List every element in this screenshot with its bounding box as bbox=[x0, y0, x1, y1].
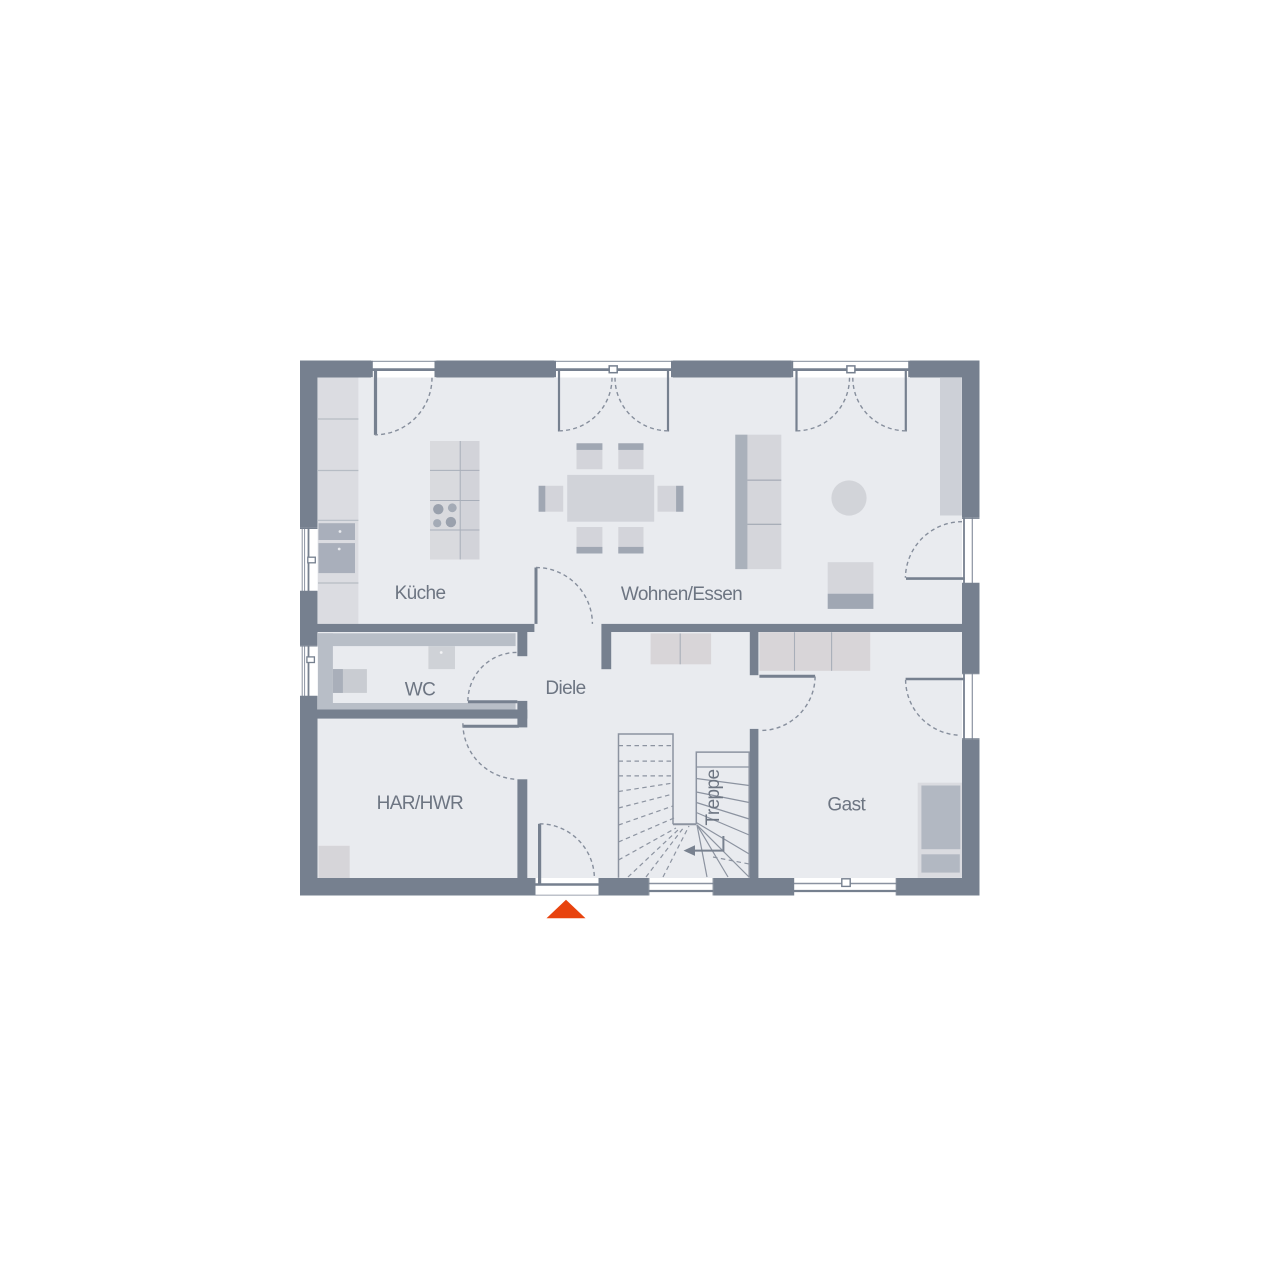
svg-text:Küche: Küche bbox=[395, 583, 446, 604]
svg-text:Gast: Gast bbox=[827, 795, 866, 816]
svg-text:Treppe: Treppe bbox=[703, 770, 724, 826]
svg-text:HAR/HWR: HAR/HWR bbox=[377, 793, 464, 814]
svg-text:WC: WC bbox=[405, 680, 435, 701]
svg-text:Diele: Diele bbox=[545, 678, 585, 699]
svg-text:Wohnen/Essen: Wohnen/Essen bbox=[621, 584, 742, 605]
